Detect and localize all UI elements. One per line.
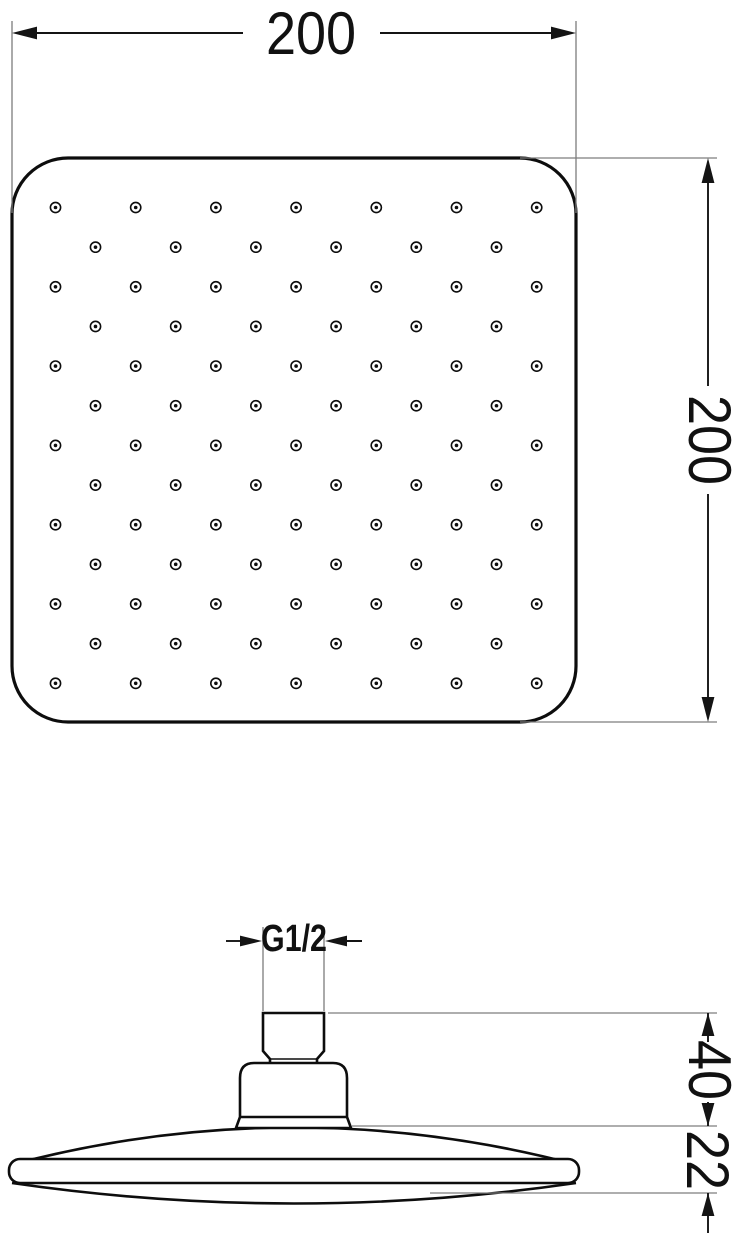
dimension-head-thickness-label: 22 [673,1130,740,1190]
nozzle-center-icon [294,285,298,289]
nozzle-center-icon [334,642,338,646]
nozzle-center-icon [415,642,419,646]
nozzle-center-icon [455,523,459,527]
nozzle-center-icon [495,642,499,646]
nozzle-center-icon [455,285,459,289]
nozzle-center-icon [134,364,138,368]
nozzle-center-icon [535,682,539,686]
nozzle-center-icon [294,206,298,210]
arrowhead-right-icon [240,936,262,947]
nozzle-center-icon [94,245,98,249]
nozzle-center-icon [375,364,379,368]
nozzle-center-icon [214,682,218,686]
arrowhead-left-icon [12,27,37,40]
technical-drawing: 200 200 G1/2 [0,0,742,1240]
dimension-width: 200 [12,0,576,213]
dimension-height-label: 200 [675,395,742,485]
nozzle-center-icon [375,523,379,527]
nozzle-center-icon [334,404,338,408]
nozzle-center-icon [455,206,459,210]
nozzle-center-icon [54,364,58,368]
nozzle-center-icon [54,682,58,686]
nozzle-center-icon [94,642,98,646]
nozzle-center-icon [214,444,218,448]
nozzle-center-icon [455,444,459,448]
nozzle-center-icon [134,523,138,527]
nozzle-center-icon [375,285,379,289]
nozzle-center-icon [254,642,258,646]
arrowhead-up-icon [702,1013,715,1036]
nozzle-center-icon [375,206,379,210]
nozzle-center-icon [535,444,539,448]
head-rim-band [9,1159,579,1183]
arrowhead-down-icon [702,1103,715,1126]
nozzle-center-icon [54,523,58,527]
nozzle-center-icon [535,364,539,368]
nozzle-center-icon [334,563,338,567]
nozzle-center-icon [455,682,459,686]
top-view: 200 200 [12,0,742,722]
nozzle-center-icon [214,602,218,606]
nozzle-center-icon [495,404,499,408]
arrowhead-right-icon [551,27,576,40]
nozzle-center-icon [214,285,218,289]
nozzle-center-icon [415,325,419,329]
nozzle-center-icon [54,444,58,448]
nozzle-center-icon [214,523,218,527]
nozzle-center-icon [174,483,178,487]
side-view: G1/2 [9,918,742,1233]
thread-nipple-body [263,1013,324,1064]
nozzle-center-icon [495,325,499,329]
dimension-height: 200 [520,158,742,722]
nozzle-center-icon [415,483,419,487]
nozzle-center-icon [94,325,98,329]
nozzle-center-icon [415,404,419,408]
nozzle-center-icon [134,285,138,289]
nozzle-center-icon [174,245,178,249]
nozzle-center-icon [294,364,298,368]
nozzle-center-icon [535,602,539,606]
dimension-thread-label: G1/2 [261,918,327,960]
nozzle-center-icon [375,444,379,448]
nozzle-center-icon [415,563,419,567]
dimension-thread: G1/2 [226,918,362,1011]
dimension-connector-height: 40 [328,1013,742,1126]
head-profile [9,1128,579,1204]
nozzle-center-icon [94,563,98,567]
nozzle-center-icon [334,325,338,329]
nozzle-center-icon [254,245,258,249]
nozzle-center-icon [535,523,539,527]
nozzle-center-icon [174,404,178,408]
nozzle-center-icon [535,285,539,289]
arrowhead-up-icon [702,1193,715,1216]
nozzle-center-icon [54,602,58,606]
nozzle-center-icon [134,206,138,210]
nozzle-center-icon [455,364,459,368]
nozzle-center-icon [54,285,58,289]
nozzle-center-icon [134,444,138,448]
nozzle-center-icon [455,602,459,606]
nozzle-center-icon [334,245,338,249]
nozzle-center-icon [174,325,178,329]
nozzle-center-icon [294,444,298,448]
nozzle-center-icon [214,364,218,368]
nozzle-center-icon [134,602,138,606]
nozzle-center-icon [134,682,138,686]
nozzle-center-icon [174,642,178,646]
nozzle-center-icon [334,483,338,487]
nozzle-center-icon [254,563,258,567]
thread-nipple [263,1013,324,1064]
nozzle-center-icon [375,602,379,606]
nozzle-center-icon [294,682,298,686]
nozzle-center-icon [294,523,298,527]
shower-head-drawing: 200 200 G1/2 [0,0,742,1240]
nozzle-center-icon [174,563,178,567]
dimension-width-label: 200 [266,0,356,67]
nozzle-center-icon [94,404,98,408]
arrowhead-up-icon [702,158,715,183]
nozzle-center-icon [294,602,298,606]
arrowhead-left-icon [325,936,347,947]
nozzle-center-icon [415,245,419,249]
mounting-cone [236,1063,351,1128]
nozzle-center-icon [495,563,499,567]
nozzle-grid [50,202,541,688]
nozzle-center-icon [94,483,98,487]
nozzle-center-icon [495,483,499,487]
nozzle-center-icon [495,245,499,249]
nozzle-center-icon [254,325,258,329]
nozzle-center-icon [535,206,539,210]
nozzle-center-icon [214,206,218,210]
dimension-connector-height-label: 40 [675,1040,742,1100]
nozzle-center-icon [254,404,258,408]
arrowhead-down-icon [702,697,715,722]
nozzle-center-icon [375,682,379,686]
nozzle-center-icon [54,206,58,210]
nozzle-center-icon [254,483,258,487]
